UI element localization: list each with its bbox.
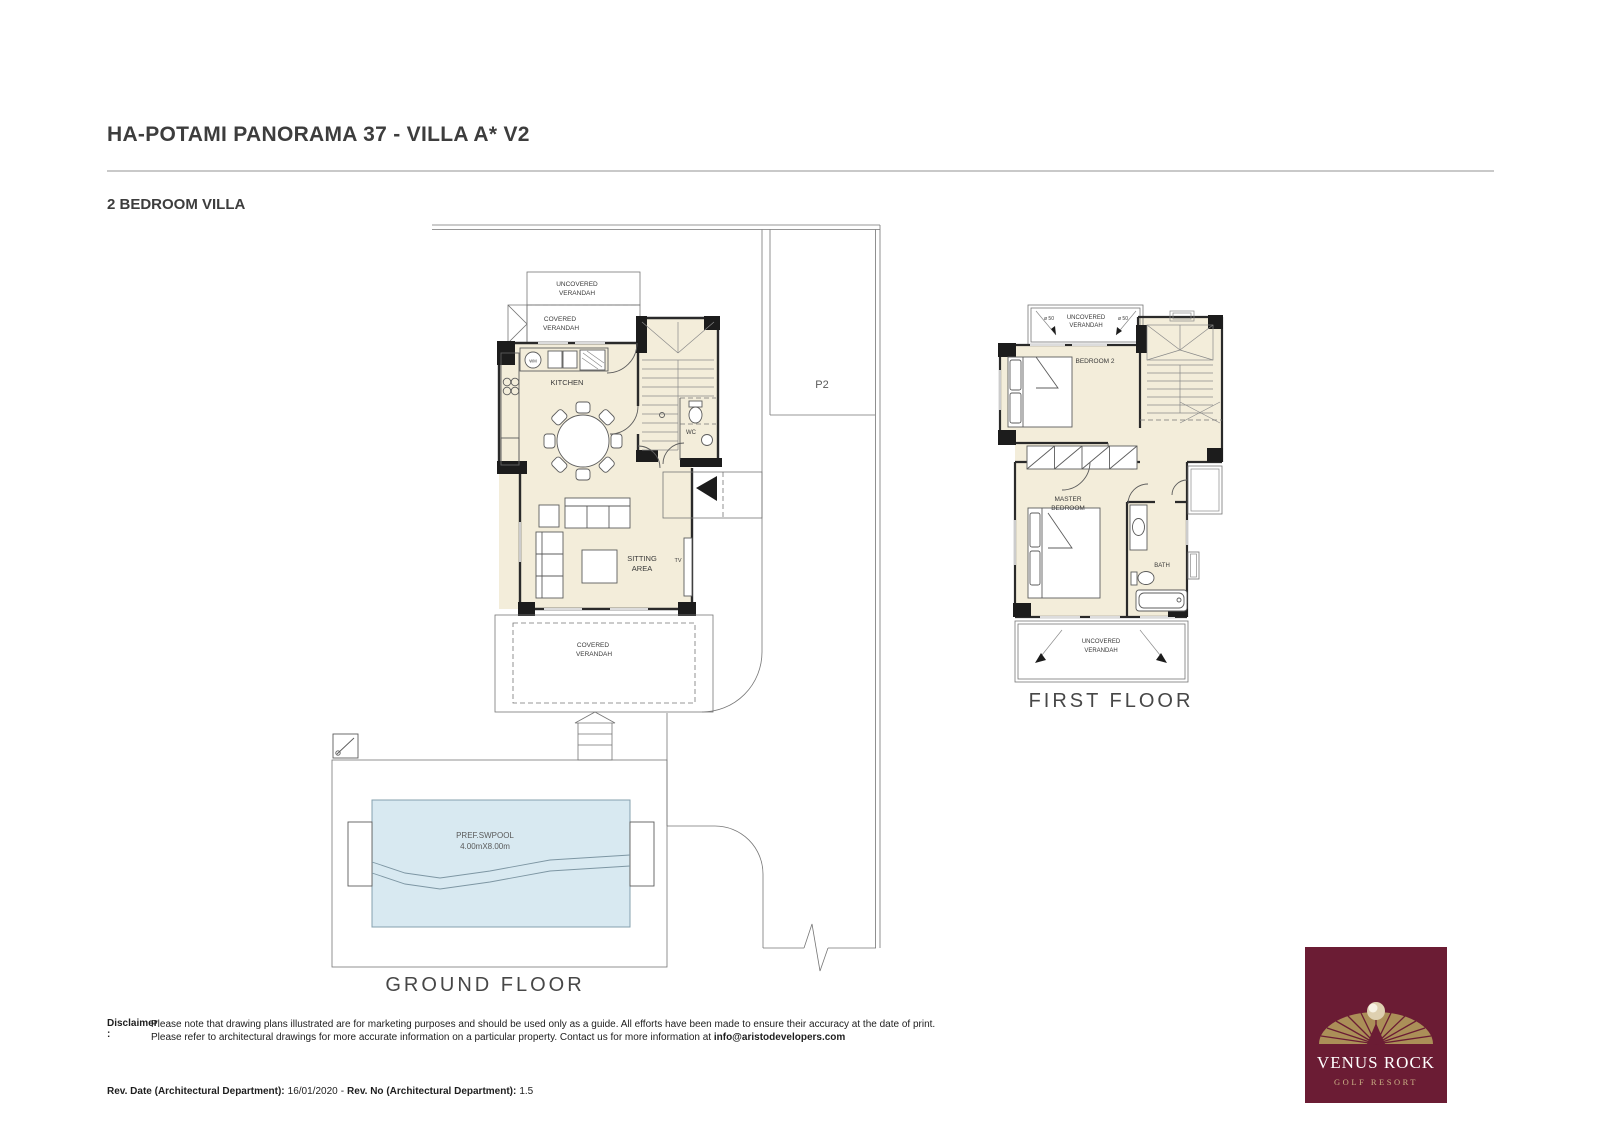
coffee-table bbox=[582, 550, 617, 583]
wardrobe bbox=[1027, 446, 1137, 469]
covered-verandah-label-2: VERANDAH bbox=[543, 325, 579, 332]
sink bbox=[548, 351, 562, 368]
bedroom2-label: BEDROOM 2 bbox=[1075, 358, 1114, 365]
kitchen-label: KITCHEN bbox=[551, 378, 584, 387]
sofa bbox=[565, 498, 630, 528]
logo-name: VENUS ROCK bbox=[1317, 1053, 1435, 1072]
first-floor-plan: UNCOVERED VERANDAH ø 50 ø 50 bbox=[950, 280, 1280, 740]
ground-floor-plan: P2 UNCOVERED VERANDAH COVERED VERANDAH bbox=[320, 210, 900, 1010]
ff-uncovered-top-1: UNCOVERED bbox=[1067, 315, 1106, 321]
sitting-label-1: SITTING bbox=[627, 554, 657, 563]
ff-top-verandah: UNCOVERED VERANDAH ø 50 ø 50 bbox=[1028, 305, 1143, 345]
ff-bottom-verandah: UNCOVERED VERANDAH bbox=[1015, 621, 1188, 682]
master-label-1: MASTER bbox=[1054, 496, 1081, 503]
rev-no-label: Rev. No (Architectural Department): bbox=[347, 1086, 516, 1097]
swimming-pool bbox=[372, 800, 630, 927]
ff-uncovered-top-2: VERANDAH bbox=[1069, 323, 1102, 329]
tv-label: TV bbox=[674, 558, 681, 564]
bottom-verandah: COVERED VERANDAH bbox=[495, 615, 713, 760]
washing-machine-label: WM bbox=[529, 359, 537, 364]
pool-label-2: 4.00mX8.00m bbox=[460, 842, 510, 851]
venus-rock-logo: VENUS ROCK GOLF RESORT bbox=[1305, 947, 1447, 1103]
page-title: HA-POTAMI PANORAMA 37 - VILLA A* V2 bbox=[107, 123, 530, 147]
ff-uncovered-bottom-2: VERANDAH bbox=[1084, 648, 1117, 654]
uncovered-verandah-label-1: UNCOVERED bbox=[556, 281, 598, 288]
header-divider bbox=[107, 170, 1494, 172]
parking-label: P2 bbox=[815, 379, 828, 391]
rev-separator: - bbox=[341, 1086, 344, 1097]
dia-left-label: ø 50 bbox=[1044, 316, 1054, 322]
rev-date-value: 16/01/2020 bbox=[288, 1086, 338, 1097]
covered-verandah-bottom-label-2: VERANDAH bbox=[576, 651, 612, 658]
dia-right-label: ø 50 bbox=[1118, 316, 1128, 322]
uncovered-verandah-label-2: VERANDAH bbox=[559, 290, 595, 297]
sitting-label-2: AREA bbox=[632, 564, 652, 573]
rev-date-label: Rev. Date (Architectural Department): bbox=[107, 1086, 285, 1097]
ground-floor-caption: GROUND FLOOR bbox=[330, 974, 640, 997]
ff-uncovered-bottom-1: UNCOVERED bbox=[1082, 639, 1121, 645]
disclaimer: Disclaimer : Please note that drawing pl… bbox=[107, 1018, 935, 1044]
disclaimer-label: Disclaimer : bbox=[107, 1018, 151, 1044]
top-verandah: UNCOVERED VERANDAH COVERED VERANDAH bbox=[508, 272, 640, 343]
master-label-2: BEDROOM bbox=[1051, 505, 1085, 512]
disclaimer-line1: Please note that drawing plans illustrat… bbox=[151, 1018, 935, 1031]
pool-label-1: PREF.SWPOOL bbox=[456, 831, 514, 840]
entrance-arrow bbox=[696, 476, 717, 501]
bath-label: BATH bbox=[1154, 563, 1170, 569]
armchair bbox=[539, 505, 559, 527]
venus-rock-logo-art: VENUS ROCK GOLF RESORT bbox=[1305, 947, 1447, 1103]
disclaimer-email: info@aristodevelopers.com bbox=[714, 1032, 845, 1043]
disclaimer-line2: Please refer to architectural drawings f… bbox=[151, 1032, 714, 1043]
tv-unit bbox=[684, 538, 692, 596]
toilet bbox=[1131, 572, 1137, 585]
rev-no-value: 1.5 bbox=[519, 1086, 533, 1097]
wc-label: WC bbox=[686, 430, 697, 436]
covered-verandah-bottom-label-1: COVERED bbox=[577, 642, 609, 649]
first-floor-caption: FIRST FLOOR bbox=[955, 690, 1267, 713]
revision-line: Rev. Date (Architectural Department):16/… bbox=[107, 1086, 536, 1097]
chaise bbox=[536, 532, 563, 598]
toilet bbox=[689, 401, 702, 407]
pool-deck: PREF.SWPOOL 4.00mX8.00m bbox=[332, 734, 667, 967]
logo-tagline: GOLF RESORT bbox=[1334, 1077, 1418, 1087]
covered-verandah-label-1: COVERED bbox=[544, 316, 576, 323]
wc-basin bbox=[702, 435, 713, 446]
page-subtitle: 2 BEDROOM VILLA bbox=[107, 196, 245, 213]
